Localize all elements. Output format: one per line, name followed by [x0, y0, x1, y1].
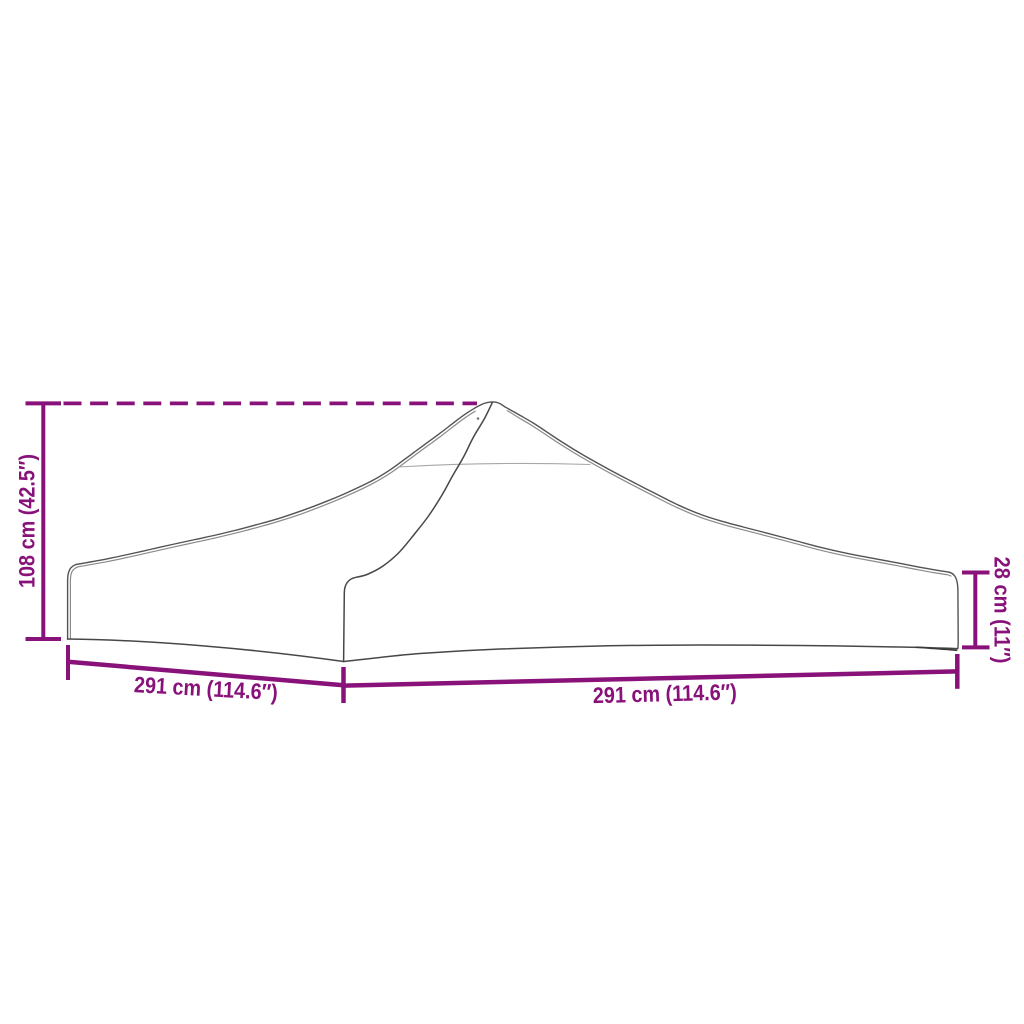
- svg-text:108 cm (42.5″): 108 cm (42.5″): [15, 454, 40, 588]
- svg-text:291 cm (114.6″): 291 cm (114.6″): [593, 679, 738, 708]
- svg-text:28 cm (11″): 28 cm (11″): [990, 557, 1015, 664]
